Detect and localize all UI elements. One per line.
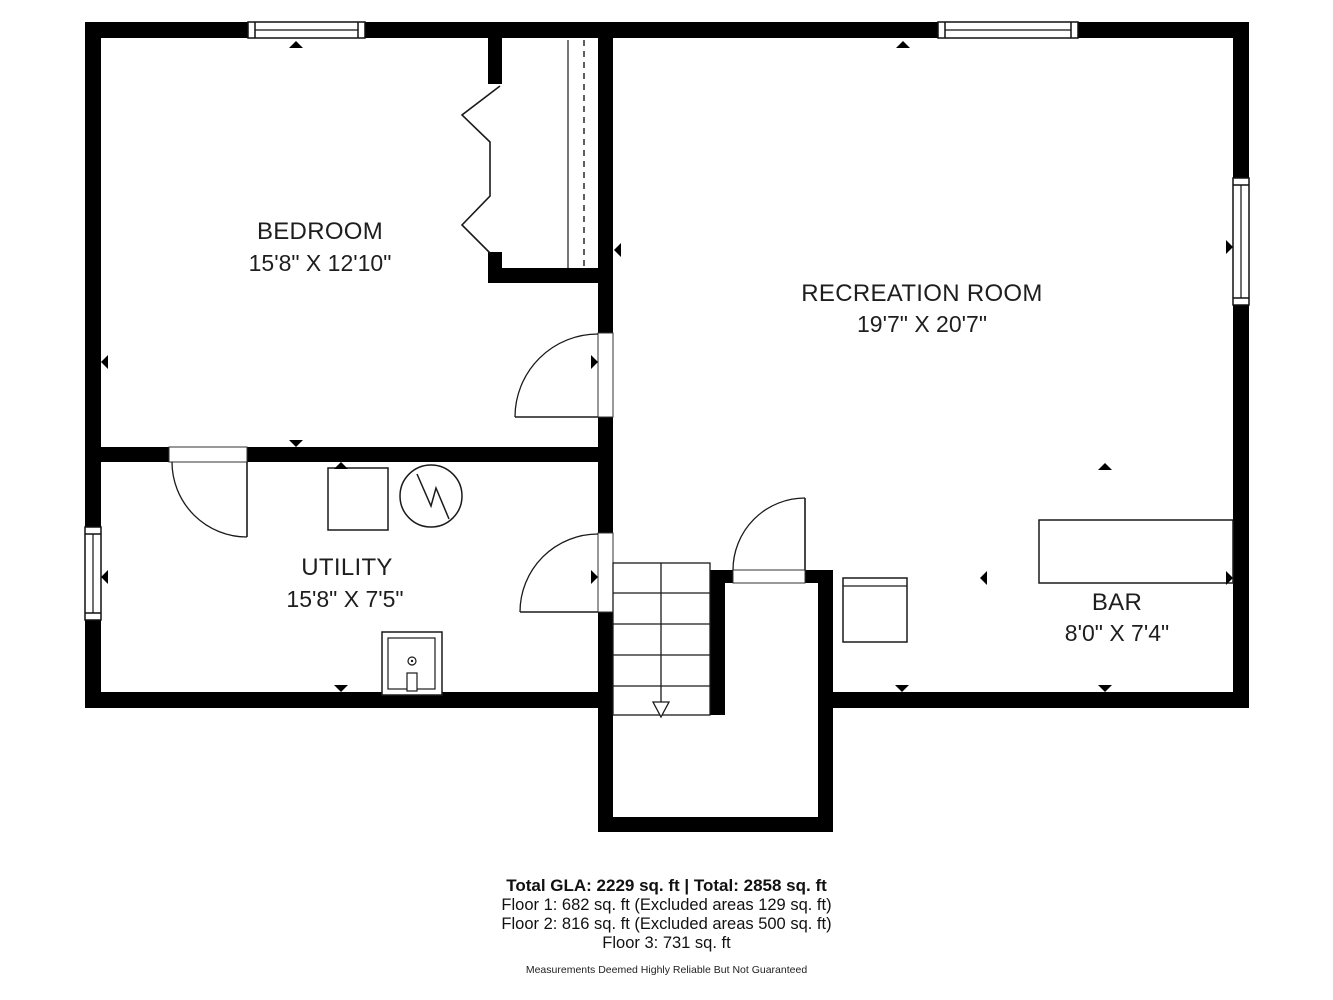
floor-plan-page: BEDROOM 15'8" X 12'10" RECREATION ROOM 1… bbox=[0, 0, 1333, 1000]
marker-bedroom-left-icon bbox=[101, 355, 108, 369]
window-recreation-right bbox=[1233, 178, 1249, 305]
utility-label: UTILITY bbox=[301, 556, 392, 580]
wall-bumpout-left bbox=[598, 708, 613, 832]
wall-interior-vertical-middle bbox=[598, 417, 613, 533]
floor1-area-text: Floor 1: 682 sq. ft (Excluded areas 129 … bbox=[0, 896, 1333, 915]
marker-recreation-bottom-icon bbox=[895, 685, 909, 692]
appliance-icon bbox=[843, 578, 907, 642]
furnace-icon bbox=[400, 465, 462, 527]
window-recreation-top bbox=[938, 22, 1078, 38]
marker-recreation-right-icon bbox=[1226, 240, 1233, 254]
marker-bedroom-right-icon bbox=[591, 355, 598, 369]
closet-stub-bottom bbox=[488, 252, 502, 268]
marker-utility-top-icon bbox=[334, 462, 348, 469]
closet-bottom-wall bbox=[488, 268, 613, 283]
marker-bedroom-bottom-icon bbox=[289, 440, 303, 447]
bedroom-dimensions: 15'8" X 12'10" bbox=[249, 252, 392, 275]
area-summary: Total GLA: 2229 sq. ft | Total: 2858 sq.… bbox=[0, 876, 1333, 976]
wall-bottom-left bbox=[85, 692, 598, 708]
marker-bar-left-icon bbox=[980, 571, 987, 585]
recreation-room-label: RECREATION ROOM bbox=[801, 282, 1042, 306]
wall-stairs-right bbox=[710, 570, 725, 715]
bar-counter bbox=[1039, 520, 1233, 583]
marker-recreation-left-icon bbox=[614, 243, 621, 257]
wall-interior-vertical-lower bbox=[598, 612, 613, 712]
disclaimer-text: Measurements Deemed Highly Reliable But … bbox=[0, 964, 1333, 976]
opening-landing-door bbox=[733, 570, 805, 583]
opening-utility-top-door bbox=[169, 447, 247, 462]
marker-bedroom-top-icon bbox=[289, 41, 303, 48]
opening-utility-right-door bbox=[598, 533, 613, 612]
wall-bedroom-utility-left bbox=[101, 447, 169, 462]
marker-utility-right-icon bbox=[591, 570, 598, 584]
opening-bedroom-door bbox=[598, 333, 613, 417]
floor3-area-text: Floor 3: 731 sq. ft bbox=[0, 934, 1333, 953]
marker-bar-bottom-icon bbox=[1098, 685, 1112, 692]
marker-utility-bottom-icon bbox=[334, 685, 348, 692]
bar-dimensions: 8'0" X 7'4" bbox=[1065, 622, 1169, 645]
bar-label: BAR bbox=[1092, 591, 1142, 615]
wall-landing-top-left bbox=[710, 570, 733, 583]
wall-bottom-right bbox=[825, 692, 1249, 708]
wall-right bbox=[1233, 22, 1249, 708]
bedroom-label: BEDROOM bbox=[257, 220, 383, 244]
closet-stub-top bbox=[488, 38, 502, 84]
total-gla-text: Total GLA: 2229 sq. ft | Total: 2858 sq.… bbox=[0, 876, 1333, 896]
landing-door bbox=[733, 498, 805, 570]
marker-bar-top-icon bbox=[1098, 463, 1112, 470]
wall-bedroom-utility-right bbox=[247, 447, 598, 462]
recreation-room-dimensions: 19'7" X 20'7" bbox=[857, 313, 987, 336]
wall-landing-right bbox=[818, 570, 833, 832]
floor2-area-text: Floor 2: 816 sq. ft (Excluded areas 500 … bbox=[0, 915, 1333, 934]
wall-interior-vertical-upper bbox=[598, 38, 613, 333]
utility-top-door bbox=[172, 462, 247, 537]
stairs bbox=[613, 563, 710, 717]
bedroom-door bbox=[515, 334, 598, 417]
window-bedroom-top bbox=[248, 22, 365, 38]
utility-right-door bbox=[520, 534, 598, 612]
floor-plan-drawing bbox=[0, 0, 1333, 870]
water-heater-icon bbox=[328, 468, 388, 530]
laundry-sink-icon bbox=[382, 632, 442, 695]
utility-dimensions: 15'8" X 7'5" bbox=[286, 588, 403, 611]
window-utility-left bbox=[85, 527, 101, 620]
marker-utility-left-icon bbox=[101, 570, 108, 584]
marker-recreation-top-icon bbox=[896, 41, 910, 48]
bifold-doors-icon bbox=[462, 86, 500, 253]
wall-bumpout-bottom bbox=[598, 817, 833, 832]
closet bbox=[462, 40, 584, 268]
